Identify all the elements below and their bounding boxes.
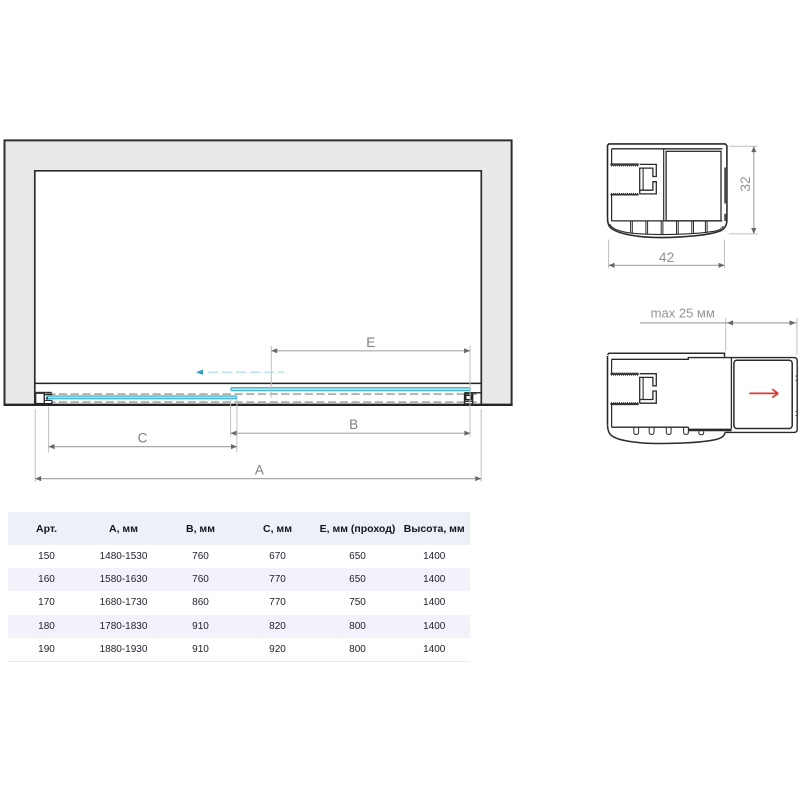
svg-text:42: 42	[659, 249, 675, 265]
svg-text:A: A	[255, 463, 264, 478]
svg-text:max 25 мм: max 25 мм	[651, 306, 715, 321]
svg-text:C: C	[138, 431, 148, 446]
svg-text:B: B	[349, 417, 358, 432]
svg-text:E: E	[366, 335, 375, 350]
svg-text:32: 32	[737, 176, 753, 192]
